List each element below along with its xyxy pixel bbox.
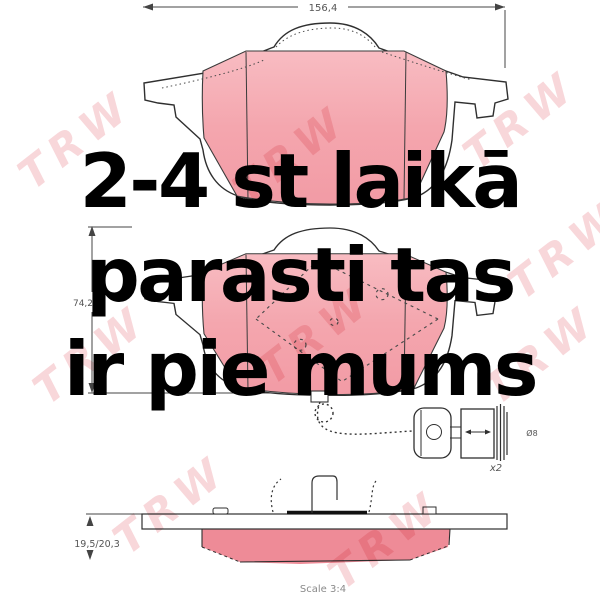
side-friction-material — [202, 529, 450, 564]
dimension-arrow-down-icon — [89, 383, 96, 393]
thickness-dimension-label: 19,5/20,3 — [74, 539, 120, 550]
top-pad-front-view — [144, 23, 508, 205]
pad-side-view: 19,5/20,3 — [74, 476, 507, 564]
side-backplate — [142, 514, 507, 529]
height-dimension-label: 74,2 — [73, 299, 93, 309]
middle-pad-front-view — [144, 228, 508, 395]
connector-body — [461, 409, 494, 458]
connector-grommet — [414, 408, 451, 458]
dimension-arrow-up-icon — [87, 516, 94, 526]
connector-ribs — [497, 404, 507, 461]
friction-material — [202, 51, 447, 204]
product-image: 156,4 74,2 — [0, 0, 600, 600]
scale-label: Scale 3:4 — [300, 584, 346, 595]
wear-sensor-wire — [311, 391, 412, 434]
dimension-arrow-left-icon — [143, 4, 153, 11]
connector-qty-label: x2 — [489, 463, 502, 474]
thickness-dimension: 19,5/20,3 — [74, 514, 146, 560]
side-rivet — [213, 508, 228, 514]
dimension-arrow-right-icon — [495, 4, 505, 11]
brake-pad-technical-drawing: 156,4 74,2 — [0, 0, 600, 600]
friction-material — [202, 254, 447, 395]
dimension-arrow-down-icon — [87, 550, 94, 560]
sensor-connector: x2 Ø8 — [414, 404, 538, 474]
side-tab — [423, 507, 436, 514]
width-dimension-label: 156,4 — [309, 3, 338, 14]
side-spring-clips — [271, 476, 377, 513]
connector-dia-label: Ø8 — [526, 428, 537, 438]
sensor-bracket — [311, 391, 328, 402]
